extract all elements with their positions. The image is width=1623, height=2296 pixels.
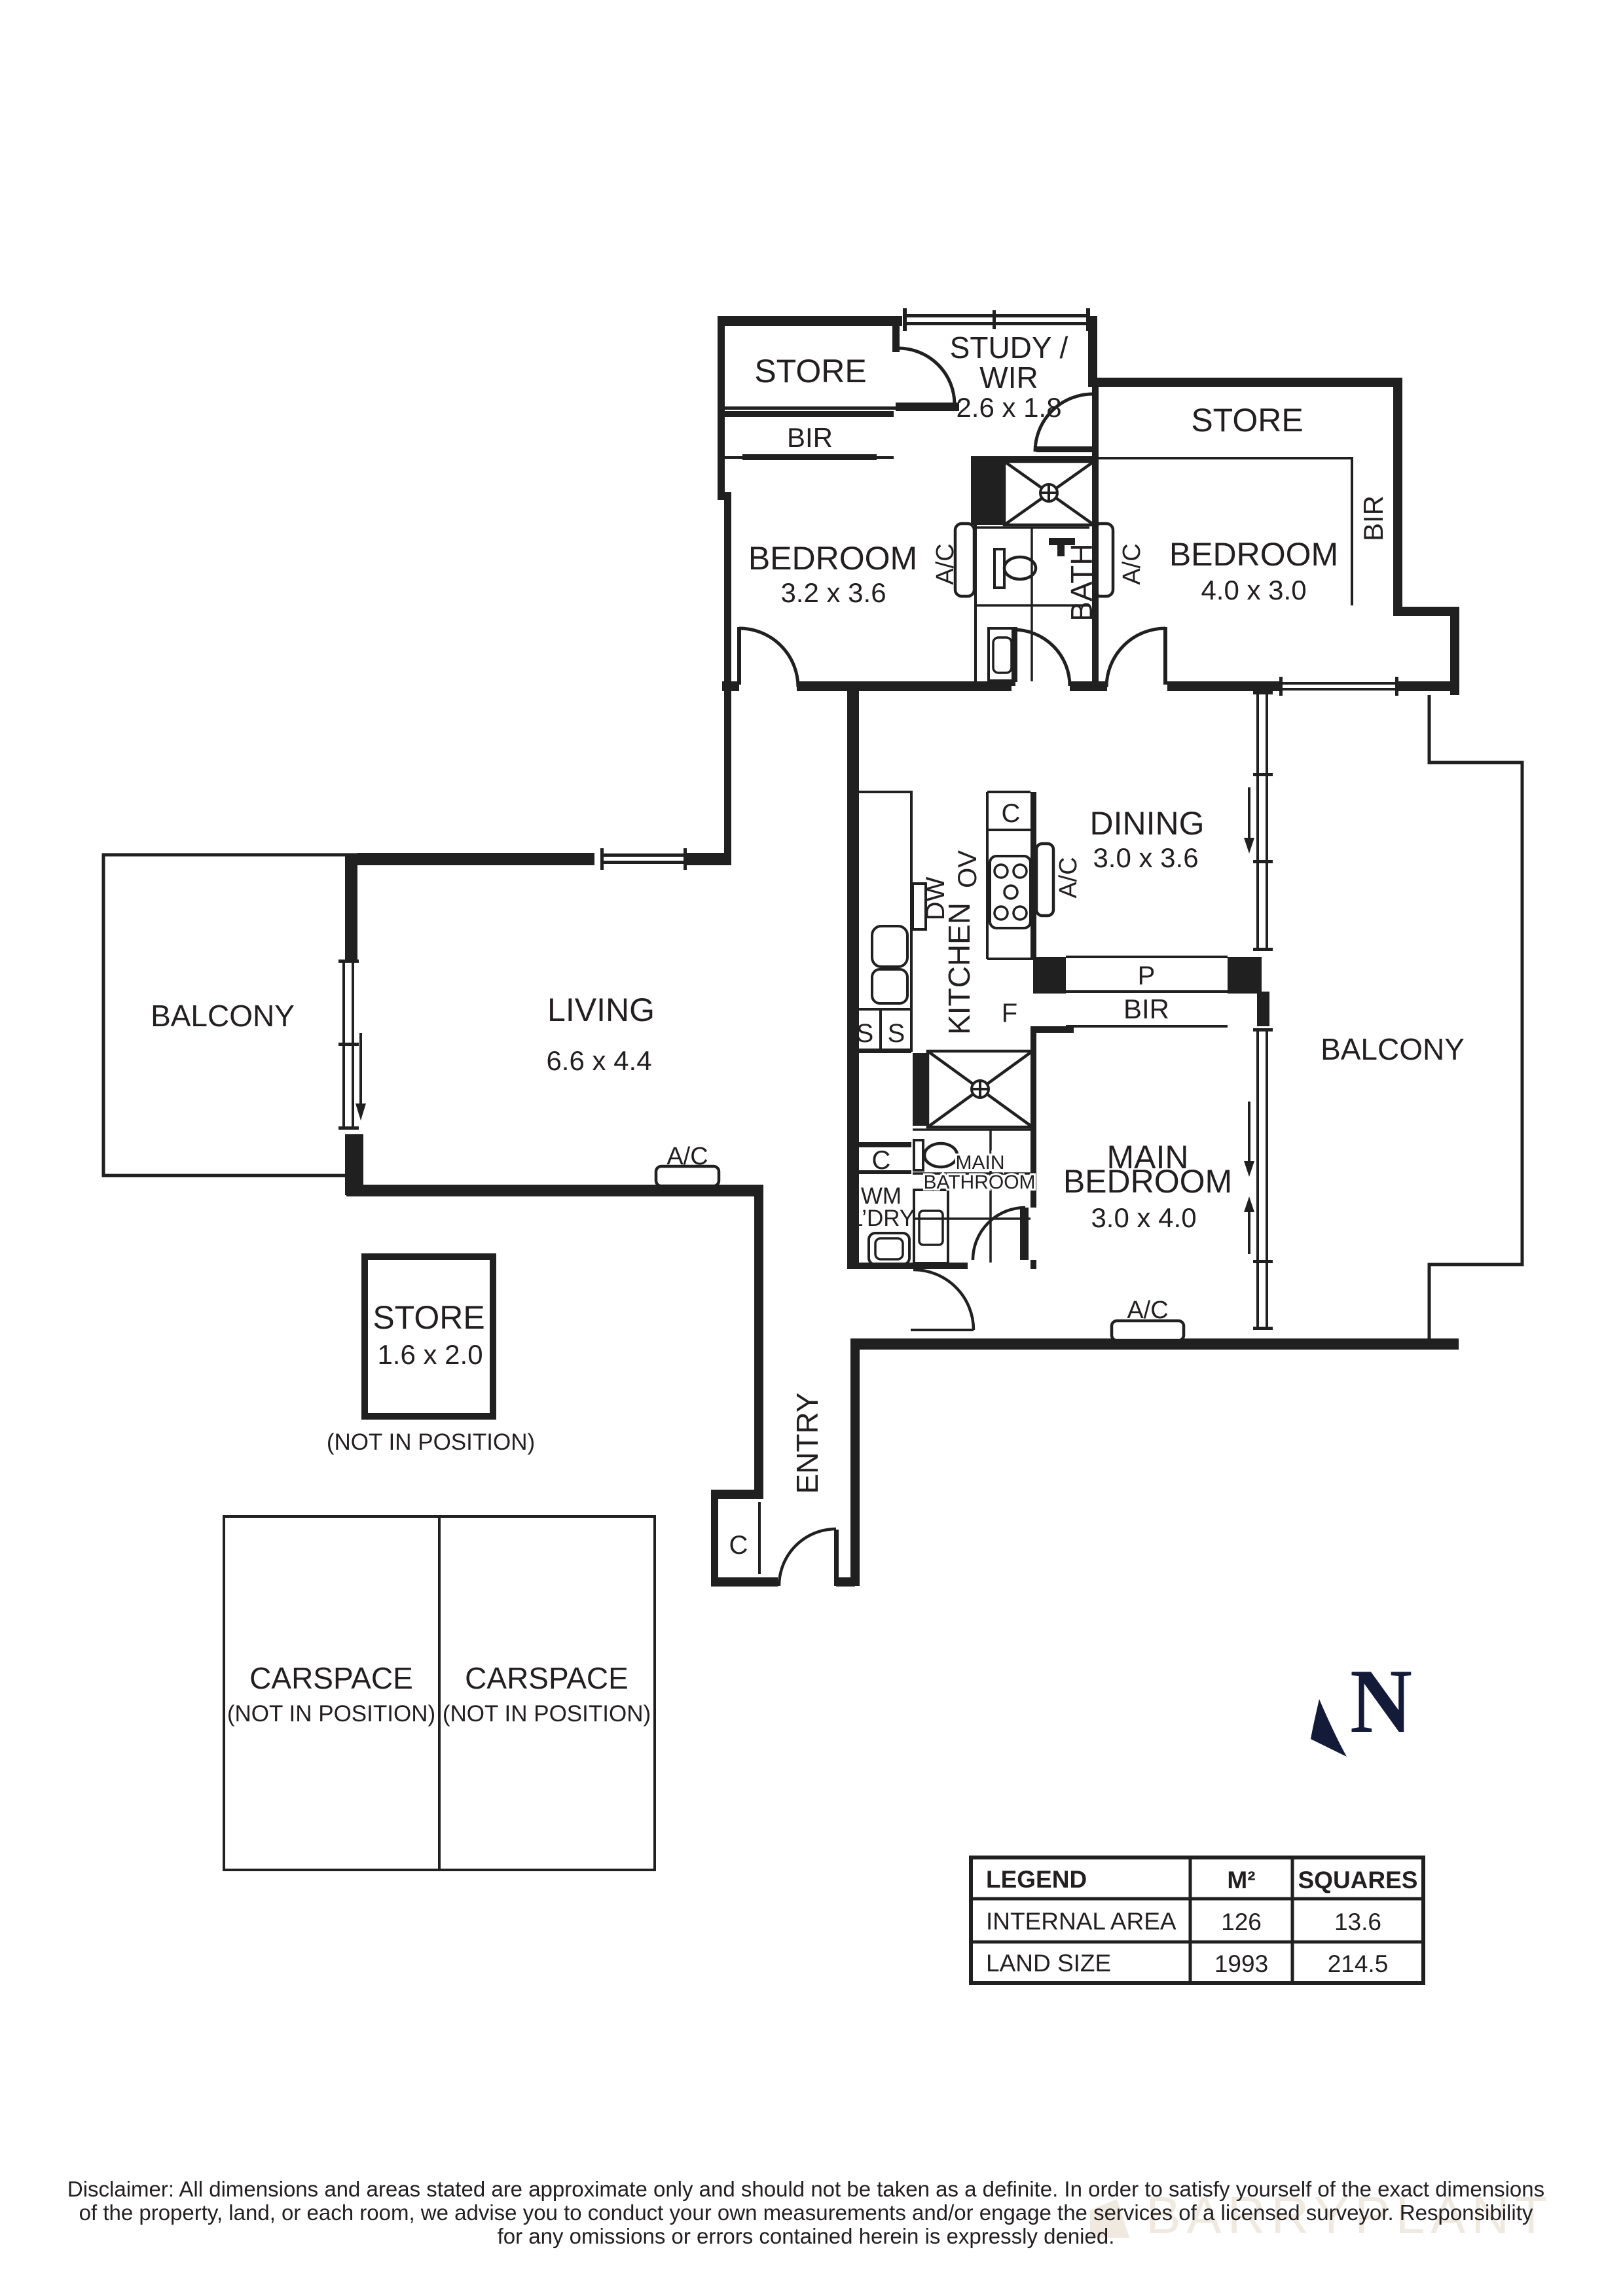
svg-text:2.6 x 1.8: 2.6 x 1.8 bbox=[956, 392, 1061, 423]
svg-text:BIR: BIR bbox=[787, 422, 833, 453]
svg-text:3.0 x 3.6: 3.0 x 3.6 bbox=[1093, 842, 1198, 873]
svg-text:S: S bbox=[856, 1019, 874, 1048]
svg-text:Disclaimer: All dimensions and: Disclaimer: All dimensions and areas sta… bbox=[67, 2177, 1544, 2201]
svg-text:STORE: STORE bbox=[1191, 402, 1303, 439]
svg-text:BALCONY: BALCONY bbox=[151, 999, 295, 1033]
svg-text:KITCHEN: KITCHEN bbox=[942, 903, 976, 1035]
svg-text:126: 126 bbox=[1221, 1909, 1262, 1935]
svg-text:BEDROOM: BEDROOM bbox=[1063, 1163, 1232, 1200]
svg-text:CARSPACE: CARSPACE bbox=[465, 1661, 629, 1695]
svg-text:6.6 x 4.4: 6.6 x 4.4 bbox=[546, 1045, 651, 1076]
svg-text:C: C bbox=[1002, 799, 1021, 828]
svg-text:BEDROOM: BEDROOM bbox=[1169, 536, 1338, 573]
svg-text:(NOT IN POSITION): (NOT IN POSITION) bbox=[227, 1701, 435, 1727]
svg-text:S: S bbox=[888, 1019, 905, 1048]
svg-text:4.0 x 3.0: 4.0 x 3.0 bbox=[1201, 575, 1306, 605]
svg-text:LEGEND: LEGEND bbox=[986, 1866, 1087, 1893]
svg-text:1993: 1993 bbox=[1214, 1950, 1268, 1977]
svg-text:C: C bbox=[872, 1146, 891, 1175]
svg-text:LAND SIZE: LAND SIZE bbox=[986, 1950, 1111, 1977]
svg-text:STUDY /: STUDY / bbox=[950, 331, 1068, 365]
svg-text:1.6 x 2.0: 1.6 x 2.0 bbox=[377, 1339, 483, 1370]
svg-text:STORE: STORE bbox=[373, 1299, 484, 1336]
svg-text:BEDROOM: BEDROOM bbox=[748, 540, 917, 577]
svg-text:A/C: A/C bbox=[1118, 543, 1146, 584]
svg-text:214.5: 214.5 bbox=[1328, 1950, 1389, 1977]
svg-text:STORE: STORE bbox=[754, 353, 866, 389]
svg-text:A/C: A/C bbox=[932, 543, 959, 584]
svg-text:of the property, land, or each: of the property, land, or each room, we … bbox=[79, 2200, 1533, 2225]
svg-text:DINING: DINING bbox=[1090, 805, 1205, 842]
svg-text:M²: M² bbox=[1227, 1867, 1255, 1893]
svg-text:3.0 x 4.0: 3.0 x 4.0 bbox=[1091, 1202, 1196, 1233]
svg-text:BIR: BIR bbox=[1358, 495, 1389, 541]
svg-text:N: N bbox=[1350, 1651, 1412, 1752]
svg-text:WIR: WIR bbox=[979, 361, 1038, 395]
svg-text:(NOT IN POSITION): (NOT IN POSITION) bbox=[327, 1429, 535, 1455]
svg-text:BATHROOM: BATHROOM bbox=[923, 1172, 1035, 1193]
svg-text:BATH: BATH bbox=[1065, 543, 1099, 621]
svg-text:13.6: 13.6 bbox=[1334, 1909, 1381, 1935]
svg-text:MAIN: MAIN bbox=[956, 1152, 1005, 1174]
svg-text:C: C bbox=[729, 1531, 748, 1560]
svg-text:(NOT IN POSITION): (NOT IN POSITION) bbox=[443, 1701, 651, 1727]
svg-text:3.2 x 3.6: 3.2 x 3.6 bbox=[780, 577, 886, 608]
svg-text:BIR: BIR bbox=[1123, 994, 1169, 1024]
svg-text:F: F bbox=[1002, 999, 1017, 1028]
svg-text:INTERNAL AREA: INTERNAL AREA bbox=[986, 1908, 1176, 1935]
svg-text:ENTRY: ENTRY bbox=[790, 1392, 824, 1494]
svg-text:A/C: A/C bbox=[1055, 857, 1082, 898]
svg-text:L’DRY: L’DRY bbox=[850, 1206, 915, 1231]
svg-text:SQUARES: SQUARES bbox=[1298, 1867, 1418, 1893]
svg-text:OV: OV bbox=[953, 850, 982, 888]
svg-text:CARSPACE: CARSPACE bbox=[249, 1661, 413, 1695]
svg-text:LIVING: LIVING bbox=[547, 992, 655, 1028]
svg-text:for any omissions or errors co: for any omissions or errors contained he… bbox=[498, 2224, 1115, 2248]
svg-text:BALCONY: BALCONY bbox=[1321, 1032, 1465, 1066]
svg-text:P: P bbox=[1138, 961, 1156, 990]
